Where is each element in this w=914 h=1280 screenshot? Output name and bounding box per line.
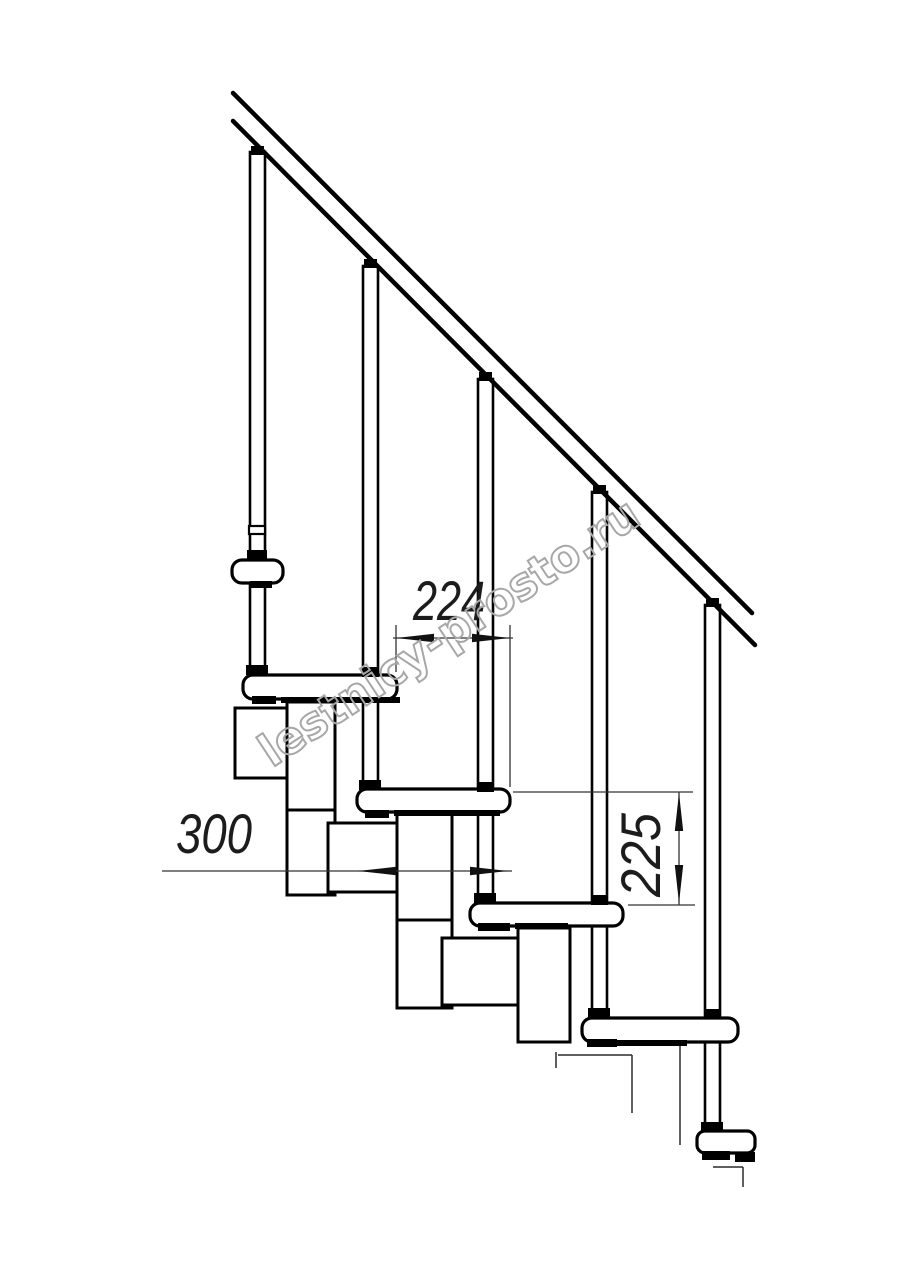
- stair-tread: [357, 789, 510, 812]
- fastener-mark: [477, 782, 494, 792]
- stair-tread: [470, 903, 623, 926]
- fastener-mark: [588, 1008, 610, 1018]
- fastener-mark: [702, 1151, 730, 1160]
- stair-tread: [697, 1131, 755, 1153]
- module-box: [518, 928, 570, 1042]
- fastener-mark: [515, 923, 568, 929]
- fastener-mark: [246, 665, 268, 675]
- stair-tread: [582, 1018, 738, 1042]
- dimension-arrow: [675, 793, 683, 831]
- stair-drawing-canvas: 224300225lestnicy-prosto.ru: [0, 0, 914, 1280]
- baluster: [250, 152, 265, 675]
- module-box: [328, 823, 403, 892]
- fastener-mark: [394, 810, 500, 816]
- stair-tread: [232, 560, 283, 583]
- fastener-mark: [365, 810, 389, 818]
- fastener-mark: [704, 1009, 721, 1018]
- fastener-mark: [587, 1039, 617, 1047]
- fastener-mark: [247, 550, 267, 560]
- fastener-mark: [591, 895, 608, 905]
- baluster: [592, 492, 607, 1018]
- fastener-mark: [617, 1040, 687, 1046]
- baluster-ring: [249, 526, 265, 534]
- stair-technical-drawing: 224300225lestnicy-prosto.ru: [0, 0, 914, 1280]
- module-box: [442, 938, 518, 1005]
- fastener-mark: [359, 780, 381, 790]
- fastener-mark: [474, 893, 496, 903]
- fastener-mark: [252, 696, 276, 704]
- watermark-text: lestnicy-prosto.ru: [249, 487, 649, 777]
- dimension-label-225: 225: [609, 812, 672, 898]
- fastener-mark: [478, 923, 510, 931]
- fastener-mark: [250, 581, 272, 588]
- fastener-mark: [735, 1152, 755, 1162]
- dimension-label-300: 300: [176, 802, 252, 865]
- fastener-mark: [701, 1122, 723, 1132]
- dimension-arrow: [675, 865, 683, 903]
- baluster: [705, 605, 720, 1132]
